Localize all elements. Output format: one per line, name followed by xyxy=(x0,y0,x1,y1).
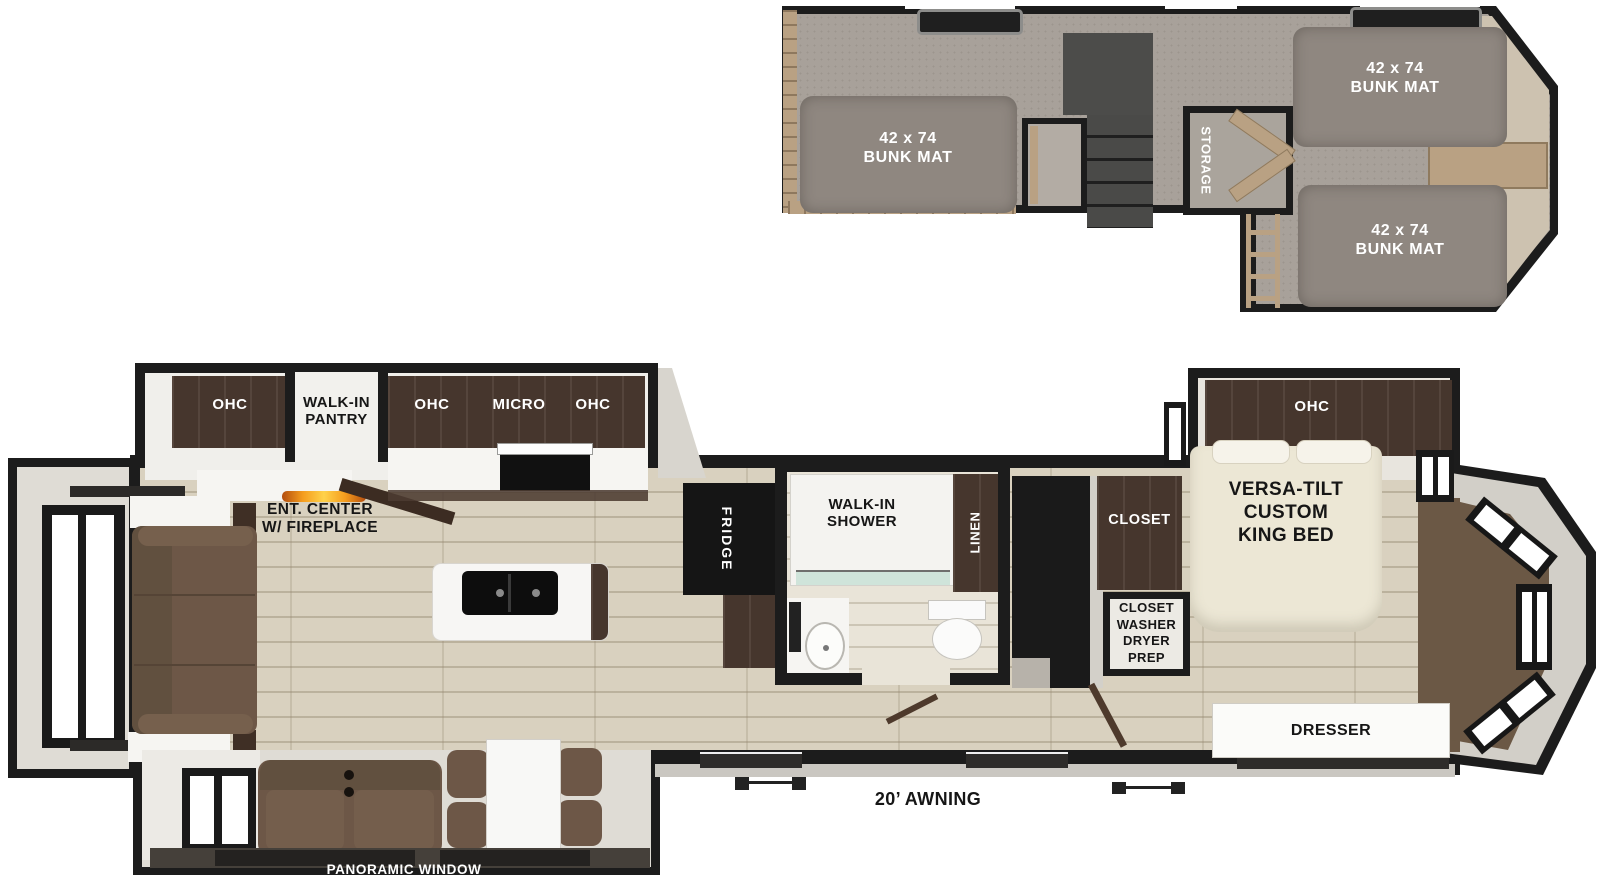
cupholder xyxy=(344,770,354,780)
washer-dryer-label: CLOSETWASHER DRYERPREP xyxy=(1104,600,1189,667)
window-pane xyxy=(222,776,248,844)
dinette-chair xyxy=(447,802,489,848)
window-pane xyxy=(52,515,78,738)
pillow xyxy=(1212,440,1290,464)
island-end-cabinet xyxy=(591,564,608,640)
loft-stairs xyxy=(1087,115,1153,228)
sofa xyxy=(132,526,257,734)
dinette-table xyxy=(487,740,560,858)
ohc-mid-label: OHC xyxy=(402,396,462,413)
dinette-chair xyxy=(447,750,489,798)
entry-steps xyxy=(1112,782,1185,795)
pantry-label: WALK-INPANTRY xyxy=(296,394,377,429)
ohc-right-label: OHC xyxy=(563,396,623,413)
ladder-rung xyxy=(1250,230,1276,235)
toilet-tank xyxy=(928,600,986,620)
dinette-chair xyxy=(558,800,602,846)
bed-label: VERSA-TILTCUSTOMKING BED xyxy=(1196,478,1376,548)
loft-wall-window xyxy=(1165,3,1237,9)
floorplan-canvas: 42 x 74BUNK MAT STORAGE 42 x 74BUNK MAT … xyxy=(0,0,1600,893)
sink-divider xyxy=(508,574,511,612)
slideout-side-shading xyxy=(658,368,706,478)
window-pane xyxy=(1537,592,1547,662)
awning-label: 20’ AWNING xyxy=(828,789,1028,810)
cabinet-below-fridge xyxy=(723,595,775,668)
ladder-rail xyxy=(1246,214,1251,308)
ent-center-label: ENT. CENTERW/ FIREPLACE xyxy=(230,501,410,537)
pantry-wall xyxy=(378,366,388,462)
window-pane xyxy=(86,515,114,738)
exterior-window xyxy=(700,752,802,768)
bathroom-sink xyxy=(805,622,845,670)
ladder-rung xyxy=(1250,252,1276,257)
toilet-bowl xyxy=(932,618,982,660)
fridge-label: FRIDGE xyxy=(719,489,735,589)
pillow xyxy=(1296,440,1372,464)
micro-label: MICRO xyxy=(489,396,549,413)
step-rail xyxy=(1112,786,1185,789)
storage-label: STORAGE xyxy=(1199,116,1214,206)
rear-window xyxy=(42,505,125,748)
window-pane xyxy=(1169,408,1181,460)
seat-cushion xyxy=(354,790,434,850)
sofa-seam xyxy=(134,664,255,666)
stairwell xyxy=(1012,476,1090,688)
pantry-wall xyxy=(285,366,295,462)
faucet-dot xyxy=(532,589,540,597)
dinette-chair xyxy=(558,748,602,796)
bunk-mat-bottom-right-label: 42 x 74BUNK MAT xyxy=(1320,222,1480,259)
bedroom-ohc-label: OHC xyxy=(1272,398,1352,415)
sofa-armrest xyxy=(138,714,253,734)
double-sink xyxy=(462,571,558,615)
sofa-seam xyxy=(134,594,255,596)
entry-steps xyxy=(735,777,806,791)
sofa-back xyxy=(132,526,172,734)
bedroom-slideout-window xyxy=(1164,402,1186,466)
loft-rail-left xyxy=(783,10,797,213)
dresser-label: DRESSER xyxy=(1251,722,1411,741)
vanity-mirror xyxy=(789,602,801,652)
step-rail xyxy=(735,781,806,784)
shower-glass xyxy=(796,570,950,585)
window-pane xyxy=(1438,457,1449,495)
bottom-slideout-window xyxy=(182,768,256,852)
range-cooktop xyxy=(500,455,590,491)
theater-seating xyxy=(258,760,442,856)
ladder-rung xyxy=(1250,296,1276,301)
cupholder xyxy=(344,787,354,797)
bunk-mat-left-label: 42 x 74BUNK MAT xyxy=(828,130,988,167)
bathroom-door-opening xyxy=(862,668,950,685)
ohc-left-label: OHC xyxy=(200,396,260,413)
loft-closet-shelf xyxy=(1030,126,1038,204)
skylight xyxy=(917,9,1023,35)
loft-table xyxy=(1428,142,1548,189)
loft-ladder xyxy=(1246,214,1280,308)
bedroom-closet-label: CLOSET xyxy=(1099,512,1180,529)
window-pane xyxy=(1522,592,1532,662)
faucet-dot xyxy=(496,589,504,597)
bedroom-slideout-window xyxy=(1416,450,1454,502)
drain-dot xyxy=(823,645,829,651)
shower-label: WALK-INSHOWER xyxy=(792,496,932,531)
panoramic-window-label: PANORAMIC WINDOW xyxy=(254,862,554,878)
window-pane xyxy=(1422,457,1433,495)
ladder-rung xyxy=(1250,274,1276,279)
counter-edge xyxy=(388,490,648,501)
linen-label: LINEN xyxy=(968,493,983,573)
window-pane xyxy=(190,776,214,844)
stair-step xyxy=(1012,658,1050,688)
seat-cushion xyxy=(266,790,344,850)
exterior-window xyxy=(966,752,1068,768)
bunk-mat-top-right-label: 42 x 74BUNK MAT xyxy=(1315,60,1475,97)
bedroom-closet xyxy=(1097,476,1182,590)
ladder-rail xyxy=(1275,214,1280,308)
range-hood xyxy=(497,443,593,455)
front-cap-window-mid xyxy=(1516,584,1552,670)
loft-stair-landing xyxy=(1063,33,1153,115)
